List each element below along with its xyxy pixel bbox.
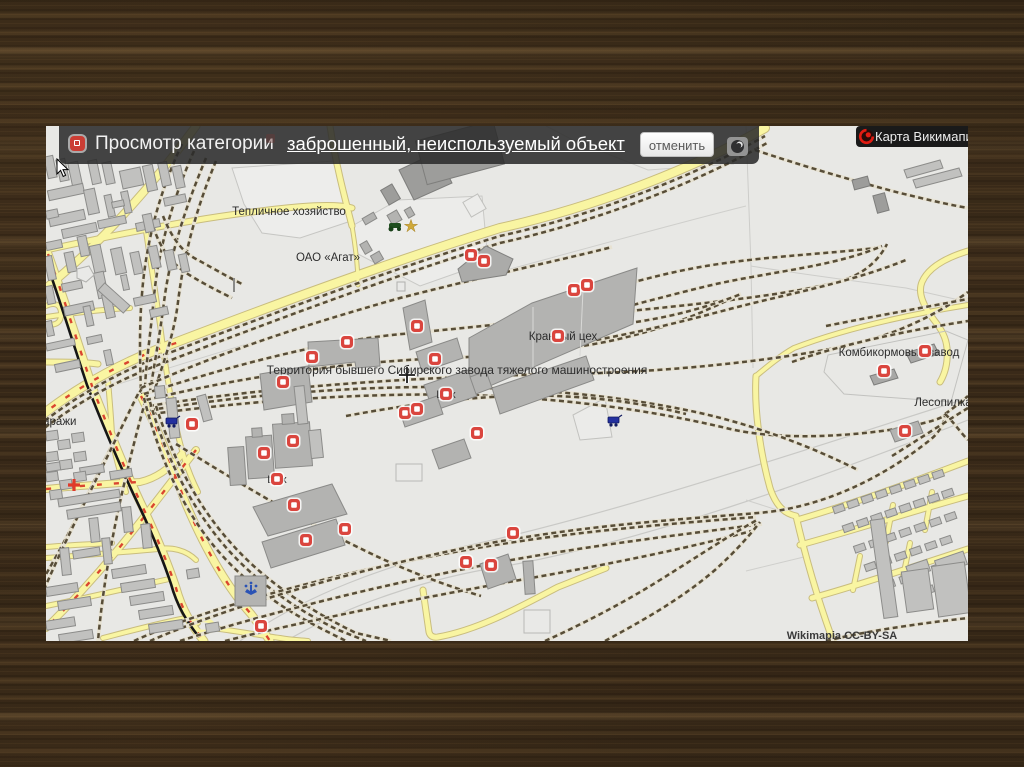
svg-text:Тепличное хозяйство: Тепличное хозяйство	[232, 206, 346, 218]
svg-text:Лесопилка: Лесопилка	[914, 397, 968, 409]
svg-text:Территория бывшего Сибирского: Территория бывшего Сибирского завода тяж…	[267, 363, 648, 377]
svg-text:ОАО «Агат»: ОАО «Агат»	[296, 252, 360, 264]
svg-text:Wikimapia CC-BY-SA: Wikimapia CC-BY-SA	[787, 630, 898, 641]
svg-text:Гаражи: Гаражи	[46, 416, 76, 428]
svg-text:Комбикормовый завод: Комбикормовый завод	[839, 347, 960, 359]
